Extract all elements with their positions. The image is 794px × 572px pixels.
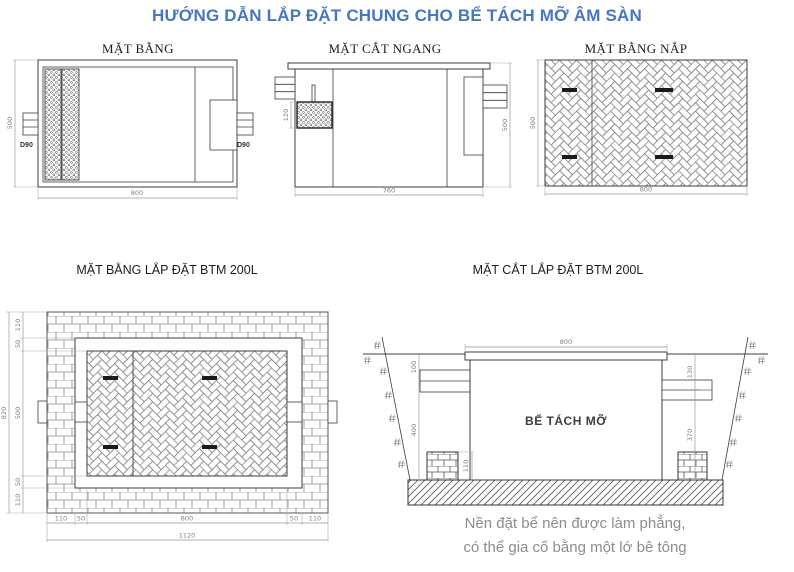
install-note: Nền đặt bể nên được làm phẳng, có thể gi… bbox=[410, 512, 740, 560]
cross-section-drawing: 120 500 760 bbox=[262, 56, 524, 206]
ip-dim-left-0: 110 bbox=[14, 319, 22, 331]
lid-plan-drawing: 500 800 bbox=[530, 56, 794, 206]
ip-dim-bottom-4: 110 bbox=[309, 515, 321, 523]
install-section-drawing: BỂ TÁCH MỠ 800 100 400 110 130 370 bbox=[360, 286, 794, 512]
ip-dim-bottom-2: 800 bbox=[181, 515, 193, 523]
page-title: HƯỚNG DẪN LẮP ĐẶT CHUNG CHO BỂ TÁCH MỠ Â… bbox=[0, 6, 794, 26]
is-dim-lid-width: 800 bbox=[465, 338, 667, 347]
page-canvas: HƯỚNG DẪN LẮP ĐẶT CHUNG CHO BỂ TÁCH MỠ Â… bbox=[0, 0, 794, 572]
cs-dim-width: 760 bbox=[383, 187, 395, 195]
is-base-slab bbox=[408, 480, 723, 505]
ip-left-dim-total: 820 bbox=[0, 312, 9, 513]
is-dim-400: 400 bbox=[410, 424, 418, 436]
ip-bottom-dim-total: 1120 bbox=[47, 532, 328, 541]
is-dim-130: 130 bbox=[686, 366, 694, 378]
ip-dim-bottom-1: 50 bbox=[77, 515, 85, 523]
cross-section-title: MẶT CẮT NGANG bbox=[305, 41, 465, 57]
plan-drawing: D90 D90 500 800 bbox=[0, 56, 260, 206]
is-dim-110: 110 bbox=[462, 460, 470, 472]
ip-lid-panel bbox=[87, 351, 287, 476]
ip-dim-left-3: 50 bbox=[14, 478, 22, 486]
cs-dim-height: 500 bbox=[501, 119, 509, 131]
install-plan-title: MẶT BẰNG LẮP ĐẶT BTM 200L bbox=[47, 263, 287, 277]
ip-left-dim-chain: 110 50 500 50 110 bbox=[14, 312, 23, 513]
cs-inlet-pipe bbox=[275, 77, 295, 99]
ip-dim-left-2: 500 bbox=[14, 407, 22, 419]
is-tank-label: BỂ TÁCH MỠ bbox=[525, 413, 607, 428]
plan-dim-height: 500 bbox=[6, 117, 14, 129]
is-inlet-pipe bbox=[420, 370, 470, 392]
is-left-slope bbox=[382, 337, 410, 480]
is-left-dim-chain: 100 400 bbox=[410, 354, 419, 480]
plan-filter-strips bbox=[45, 69, 79, 180]
install-note-line2: có thể gia cố bằng một lớ bê tông bbox=[410, 536, 740, 560]
is-dim-100: 100 bbox=[410, 361, 418, 373]
is-tank-lid bbox=[465, 352, 667, 360]
cs-outlet-pipe bbox=[483, 85, 507, 108]
cs-lid bbox=[288, 63, 490, 69]
is-dim-800: 800 bbox=[560, 338, 572, 346]
plan-outlet-label: D90 bbox=[237, 142, 250, 149]
install-note-line1: Nền đặt bể nên được làm phẳng, bbox=[410, 512, 740, 536]
cs-filter-basket bbox=[297, 102, 332, 128]
is-dim-370: 370 bbox=[686, 429, 694, 441]
lid-dim-width: 800 bbox=[640, 186, 652, 194]
ip-dim-left-4: 110 bbox=[14, 494, 22, 506]
plan-inlet-label: D90 bbox=[20, 142, 33, 149]
install-section-title: MẶT CẮT LẮP ĐẶT BTM 200L bbox=[438, 263, 678, 277]
ip-dim-left-1: 50 bbox=[14, 340, 22, 348]
plan-title: MẶT BẰNG bbox=[58, 41, 218, 57]
cs-dim-basket: 120 bbox=[282, 109, 290, 121]
plan-inlet-pipe bbox=[23, 113, 38, 135]
ip-dim-bottom-total: 1120 bbox=[179, 532, 196, 540]
lid-plan-title: MẶT BẰNG NẮP bbox=[556, 41, 716, 57]
lid-panel bbox=[545, 60, 747, 186]
install-plan-drawing: 110 50 500 50 110 820 110 50 800 50 110 … bbox=[0, 300, 355, 572]
ip-dim-left-total: 820 bbox=[0, 407, 8, 419]
ip-dim-bottom-3: 50 bbox=[290, 515, 298, 523]
cs-baffle bbox=[464, 77, 483, 155]
plan-dim-width: 800 bbox=[131, 189, 143, 197]
cs-basket-handle bbox=[312, 85, 315, 102]
is-right-slope bbox=[722, 337, 748, 480]
ip-dim-bottom-0: 110 bbox=[55, 515, 67, 523]
plan-outlet-pipe bbox=[237, 113, 253, 135]
plan-outlet-box bbox=[210, 100, 237, 150]
ip-bottom-dim-chain: 110 50 800 50 110 bbox=[47, 515, 328, 524]
lid-dim-height: 500 bbox=[529, 117, 537, 129]
